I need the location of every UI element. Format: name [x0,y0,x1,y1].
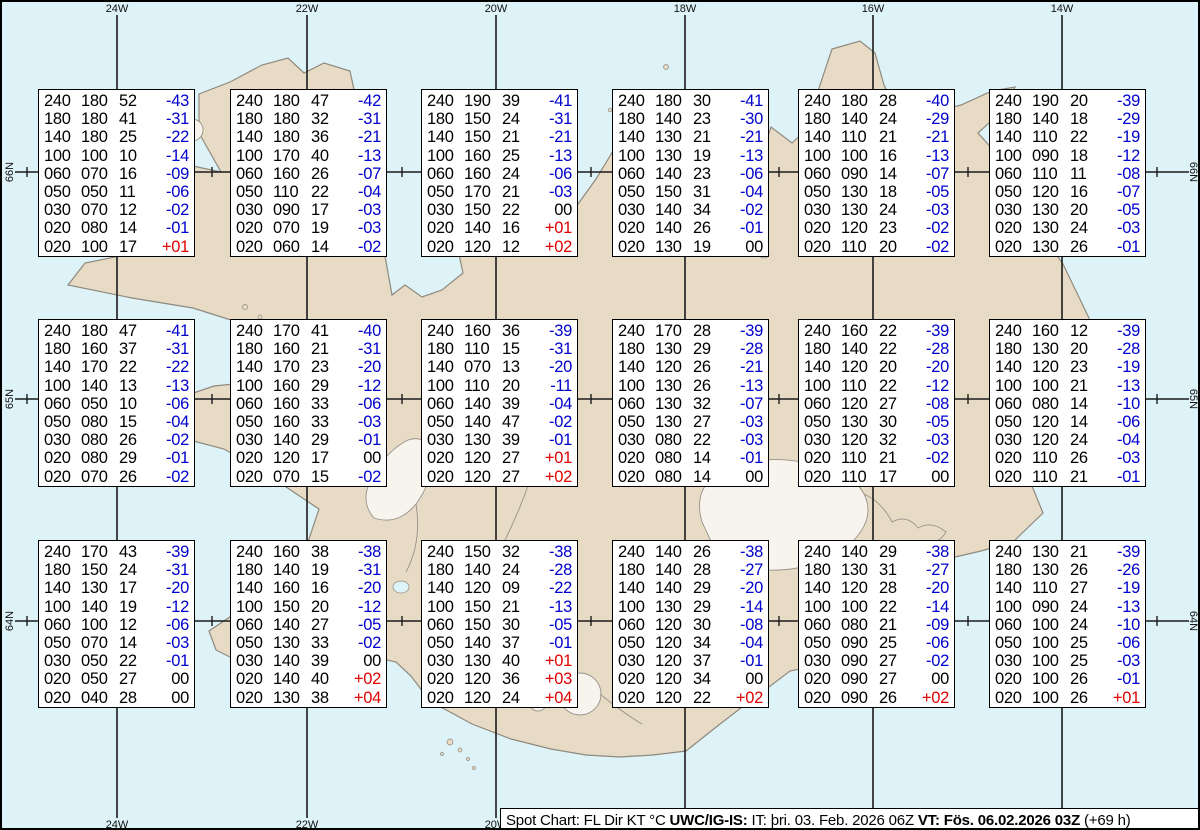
temp-value: -09 [907,616,949,634]
spot-row: 14015021-21 [427,128,572,146]
dir-value: 140 [273,652,311,670]
fl-value: 020 [995,689,1032,707]
temp-value: -19 [1098,358,1140,376]
spot-row: 14017023-20 [236,358,381,376]
temp-value: -39 [1098,543,1140,561]
spot-row: 03014029-01 [236,431,381,449]
kt-value: 27 [502,449,530,467]
kt-value: 29 [879,543,907,561]
kt-value: 41 [119,110,147,128]
fl-value: 240 [804,92,841,110]
kt-value: 25 [879,634,907,652]
kt-value: 38 [311,689,339,707]
fl-value: 180 [804,340,841,358]
spot-row: 10010022-14 [804,598,949,616]
fl-value: 180 [804,110,841,128]
kt-value: 24 [1070,598,1098,616]
spot-box-r2c2: 24017041-4018016021-3114017023-201001602… [230,319,387,487]
temp-value: -04 [721,183,763,201]
dir-value: 080 [655,431,693,449]
fl-value: 180 [618,561,655,579]
spot-row: 24014029-38 [804,543,949,561]
fl-value: 020 [618,238,655,256]
fl-value: 180 [995,561,1032,579]
lat-label-left-65N: 65N [4,389,16,409]
kt-value: 23 [879,219,907,237]
kt-value: 40 [311,670,339,688]
temp-value: -02 [907,652,949,670]
spot-row: 02011020-02 [804,238,949,256]
kt-value: 27 [879,670,907,688]
fl-value: 030 [995,201,1032,219]
fl-value: 020 [804,238,841,256]
dir-value: 120 [1032,413,1070,431]
kt-value: 29 [119,449,147,467]
dir-value: 130 [1032,340,1070,358]
kt-value: 24 [1070,219,1098,237]
fl-value: 030 [804,431,841,449]
dir-value: 120 [464,449,502,467]
spot-row: 03005022-01 [44,652,189,670]
kt-value: 13 [119,377,147,395]
dir-value: 150 [81,561,119,579]
temp-value: -39 [530,322,572,340]
kt-value: 41 [311,322,339,340]
fl-value: 020 [44,689,81,707]
spot-row: 02011021-01 [995,468,1140,486]
kt-value: 47 [119,322,147,340]
fl-value: 020 [236,449,273,467]
dir-value: 170 [464,183,502,201]
fl-value: 030 [427,431,464,449]
spot-row: 24018047-41 [44,322,189,340]
fl-value: 100 [236,147,273,165]
spot-row: 14017022-22 [44,358,189,376]
kt-value: 11 [119,183,147,201]
spot-box-r1c4: 24018030-4118014023-3014013021-211001301… [612,89,769,257]
kt-value: 19 [311,219,339,237]
spot-box-r1c1: 24018052-4318018041-3114018025-221001001… [38,89,195,257]
spot-box-r1c3: 24019039-4118015024-3114015021-211001602… [421,89,578,257]
dir-value: 140 [655,561,693,579]
spot-row: 05015031-04 [618,183,763,201]
temp-value: -08 [907,395,949,413]
dir-value: 110 [273,183,311,201]
spot-box-r3c5: 24014029-3818013031-2714012028-201001002… [798,540,955,708]
dir-value: 120 [273,449,311,467]
fl-value: 180 [427,340,464,358]
dir-value: 190 [1032,92,1070,110]
kt-value: 24 [502,165,530,183]
kt-value: 18 [879,183,907,201]
kt-value: 19 [311,561,339,579]
temp-value: 00 [907,670,949,688]
dir-value: 140 [841,340,879,358]
kt-value: 23 [693,110,721,128]
fl-value: 050 [804,634,841,652]
spot-row: 05012034-04 [618,634,763,652]
fl-value: 180 [427,561,464,579]
kt-value: 26 [693,543,721,561]
kt-value: 22 [879,322,907,340]
dir-value: 160 [464,322,502,340]
fl-value: 100 [44,147,81,165]
kt-value: 19 [693,238,721,256]
dir-value: 040 [81,689,119,707]
spot-row: 03009027-02 [804,652,949,670]
temp-value: -38 [721,543,763,561]
fl-value: 050 [44,413,81,431]
fl-value: 100 [618,377,655,395]
spot-row: 18011015-31 [427,340,572,358]
dir-value: 150 [464,598,502,616]
temp-value: -13 [530,598,572,616]
kt-value: 25 [502,147,530,165]
fl-value: 060 [618,395,655,413]
spot-row: 05011022-04 [236,183,381,201]
spot-row: 02010026+01 [995,689,1140,707]
fl-value: 020 [804,449,841,467]
spot-row: 03014034-02 [618,201,763,219]
lat-label-left-64N: 64N [4,611,16,631]
temp-value: -41 [147,322,189,340]
fl-value: 050 [804,183,841,201]
temp-value: -06 [339,395,381,413]
fl-value: 240 [236,92,273,110]
fl-value: 050 [236,413,273,431]
temp-value: -40 [339,322,381,340]
kt-value: 34 [693,670,721,688]
dir-value: 110 [1032,128,1070,146]
temp-value: -02 [339,468,381,486]
dir-value: 100 [81,238,119,256]
temp-value: -02 [147,431,189,449]
dir-value: 140 [841,543,879,561]
dir-value: 050 [81,652,119,670]
spot-row: 24017028-39 [618,322,763,340]
temp-value: -13 [1098,598,1140,616]
kt-value: 21 [693,128,721,146]
spot-row: 02012023-02 [804,219,949,237]
fl-value: 060 [427,395,464,413]
fl-value: 140 [44,579,81,597]
fl-value: 030 [995,431,1032,449]
temp-value: -07 [1098,183,1140,201]
kt-value: 30 [693,616,721,634]
kt-value: 21 [502,598,530,616]
kt-value: 19 [119,598,147,616]
spot-row: 06015030-05 [427,616,572,634]
spot-row: 02012027+02 [427,468,572,486]
dir-value: 120 [464,238,502,256]
dir-value: 130 [655,413,693,431]
kt-value: 14 [879,165,907,183]
spot-row: 18013026-26 [995,561,1140,579]
dir-value: 120 [464,579,502,597]
temp-value: -20 [721,579,763,597]
spot-row: 24016022-39 [804,322,949,340]
kt-value: 47 [502,413,530,431]
kt-value: 24 [1070,431,1098,449]
kt-value: 12 [119,201,147,219]
spot-row: 14012020-20 [804,358,949,376]
kt-value: 39 [502,431,530,449]
temp-value: -28 [1098,340,1140,358]
fl-value: 020 [804,670,841,688]
fl-value: 060 [804,395,841,413]
spot-row: 14013021-21 [618,128,763,146]
fl-value: 050 [44,183,81,201]
kt-value: 21 [1070,377,1098,395]
dir-value: 120 [841,579,879,597]
dir-value: 160 [273,340,311,358]
kt-value: 24 [879,110,907,128]
fl-value: 020 [427,219,464,237]
fl-value: 030 [236,201,273,219]
dir-value: 160 [81,340,119,358]
kt-value: 20 [1070,92,1098,110]
spot-row: 02012027+01 [427,449,572,467]
kt-value: 17 [119,579,147,597]
temp-value: -30 [721,110,763,128]
spot-row: 10015020-12 [236,598,381,616]
spot-row: 03013040+01 [427,652,572,670]
temp-value: -38 [907,543,949,561]
fl-value: 180 [44,110,81,128]
fl-value: 180 [236,340,273,358]
temp-value: -01 [147,219,189,237]
temp-value: -31 [530,110,572,128]
temp-value: -27 [721,561,763,579]
kt-value: 26 [1070,238,1098,256]
dir-value: 160 [464,165,502,183]
spot-row: 02007015-02 [236,468,381,486]
dir-value: 130 [655,238,693,256]
temp-value: 00 [721,670,763,688]
fl-value: 060 [427,616,464,634]
fl-value: 240 [44,322,81,340]
spot-row: 10009018-12 [995,147,1140,165]
temp-value: -21 [530,128,572,146]
dir-value: 180 [273,128,311,146]
temp-value: -27 [907,561,949,579]
kt-value: 32 [311,110,339,128]
spot-row: 14018025-22 [44,128,189,146]
dir-value: 120 [655,670,693,688]
spot-row: 10014013-13 [44,377,189,395]
dir-value: 080 [655,468,693,486]
fl-value: 030 [44,201,81,219]
temp-value: -06 [721,165,763,183]
spot-row: 0201301900 [618,238,763,256]
kt-value: 17 [119,238,147,256]
spot-box-r2c4: 24017028-3918013029-2814012026-211001302… [612,319,769,487]
dir-value: 100 [1032,652,1070,670]
dir-value: 120 [655,689,693,707]
dir-value: 090 [841,634,879,652]
dir-value: 060 [273,238,311,256]
fl-value: 100 [44,598,81,616]
kt-value: 20 [879,358,907,376]
fl-value: 020 [804,219,841,237]
fl-value: 020 [995,238,1032,256]
spot-row: 05014037-01 [427,634,572,652]
temp-value: -38 [339,543,381,561]
spot-row: 02013038+04 [236,689,381,707]
kt-value: 25 [1070,634,1098,652]
temp-value: -06 [147,183,189,201]
spot-row: 14012009-22 [427,579,572,597]
temp-value: +01 [530,652,572,670]
spot-row: 10017040-13 [236,147,381,165]
kt-value: 16 [119,165,147,183]
temp-value: -22 [147,358,189,376]
kt-value: 34 [693,634,721,652]
kt-value: 26 [693,219,721,237]
kt-value: 22 [119,652,147,670]
fl-value: 240 [236,322,273,340]
fl-value: 100 [44,377,81,395]
fl-value: 240 [995,543,1032,561]
dir-value: 180 [81,128,119,146]
kt-value: 21 [311,340,339,358]
temp-value: -38 [530,543,572,561]
temp-value: +01 [1098,689,1140,707]
dir-value: 070 [273,219,311,237]
temp-value: 00 [147,689,189,707]
dir-value: 140 [81,377,119,395]
temp-value: 00 [721,468,763,486]
kt-value: 20 [879,238,907,256]
spot-row: 18015024-31 [427,110,572,128]
dir-value: 100 [1032,616,1070,634]
temp-value: +04 [339,689,381,707]
temp-value: -04 [339,183,381,201]
spot-row: 18013029-28 [618,340,763,358]
kt-value: 21 [502,183,530,201]
dir-value: 120 [841,219,879,237]
temp-value: -03 [721,431,763,449]
temp-value: +02 [530,468,572,486]
fl-value: 060 [618,165,655,183]
kt-value: 30 [502,616,530,634]
temp-value: -03 [721,413,763,431]
kt-value: 15 [502,340,530,358]
temp-value: -01 [1098,238,1140,256]
dir-value: 120 [841,395,879,413]
kt-value: 16 [311,579,339,597]
spot-row: 14018036-21 [236,128,381,146]
spot-box-r3c6: 24013021-3918013026-2614011027-191000902… [989,540,1146,708]
dir-value: 100 [1032,377,1070,395]
fl-value: 060 [995,616,1032,634]
fl-value: 180 [804,561,841,579]
spot-row: 06012027-08 [804,395,949,413]
fl-value: 020 [804,468,841,486]
dir-value: 120 [655,634,693,652]
spot-row: 18014024-28 [427,561,572,579]
spot-row: 18018041-31 [44,110,189,128]
fl-value: 240 [618,543,655,561]
kt-value: 40 [311,147,339,165]
spot-row: 24017043-39 [44,543,189,561]
kt-value: 16 [1070,183,1098,201]
kt-value: 37 [119,340,147,358]
dir-value: 080 [841,616,879,634]
spot-box-r3c3: 24015032-3818014024-2814012009-221001502… [421,540,578,708]
kt-value: 27 [1070,579,1098,597]
dir-value: 130 [841,183,879,201]
fl-value: 020 [804,689,841,707]
kt-value: 43 [119,543,147,561]
dir-value: 120 [1032,358,1070,376]
spot-row: 02013026-01 [995,238,1140,256]
spot-box-r3c1: 24017043-3918015024-3114013017-201001401… [38,540,195,708]
spot-box-r2c6: 24016012-3918013020-2814012023-191001002… [989,319,1146,487]
temp-value: -28 [907,340,949,358]
temp-value: -12 [147,598,189,616]
spot-row: 0200502700 [44,670,189,688]
spot-row: 10010010-14 [44,147,189,165]
dir-value: 130 [655,395,693,413]
dir-value: 090 [841,165,879,183]
temp-value: -02 [339,238,381,256]
spot-row: 24019020-39 [995,92,1140,110]
spot-row: 10015021-13 [427,598,572,616]
dir-value: 130 [655,377,693,395]
dir-value: 160 [841,322,879,340]
dir-value: 120 [464,468,502,486]
spot-row: 06014023-06 [618,165,763,183]
temp-value: 00 [721,238,763,256]
fl-value: 140 [44,128,81,146]
spot-row: 24016012-39 [995,322,1140,340]
dir-value: 080 [81,413,119,431]
temp-value: -01 [721,219,763,237]
kt-value: 28 [119,689,147,707]
dir-value: 130 [1032,543,1070,561]
spot-row: 10014019-12 [44,598,189,616]
kt-value: 26 [119,468,147,486]
spot-chart-map: Spot Chart: FL Dir KT °C UWC/IG-IS: IT: … [0,0,1200,830]
fl-value: 020 [236,219,273,237]
temp-value: -39 [721,322,763,340]
kt-value: 14 [1070,395,1098,413]
temp-value: -07 [721,395,763,413]
fl-value: 100 [804,377,841,395]
spot-row: 06010012-06 [44,616,189,634]
kt-value: 22 [693,689,721,707]
temp-value: -28 [530,561,572,579]
dir-value: 170 [273,147,311,165]
fl-value: 050 [995,634,1032,652]
temp-value: -20 [907,579,949,597]
kt-value: 26 [119,431,147,449]
dir-value: 170 [655,322,693,340]
kt-value: 52 [119,92,147,110]
fl-value: 060 [804,616,841,634]
kt-value: 39 [311,652,339,670]
dir-value: 140 [841,110,879,128]
kt-value: 29 [693,598,721,616]
spot-row: 03012037-01 [618,652,763,670]
temp-value: -13 [147,377,189,395]
spot-row: 14013017-20 [44,579,189,597]
kt-value: 24 [502,561,530,579]
dir-value: 130 [273,634,311,652]
dir-value: 130 [655,147,693,165]
spot-row: 10013026-13 [618,377,763,395]
